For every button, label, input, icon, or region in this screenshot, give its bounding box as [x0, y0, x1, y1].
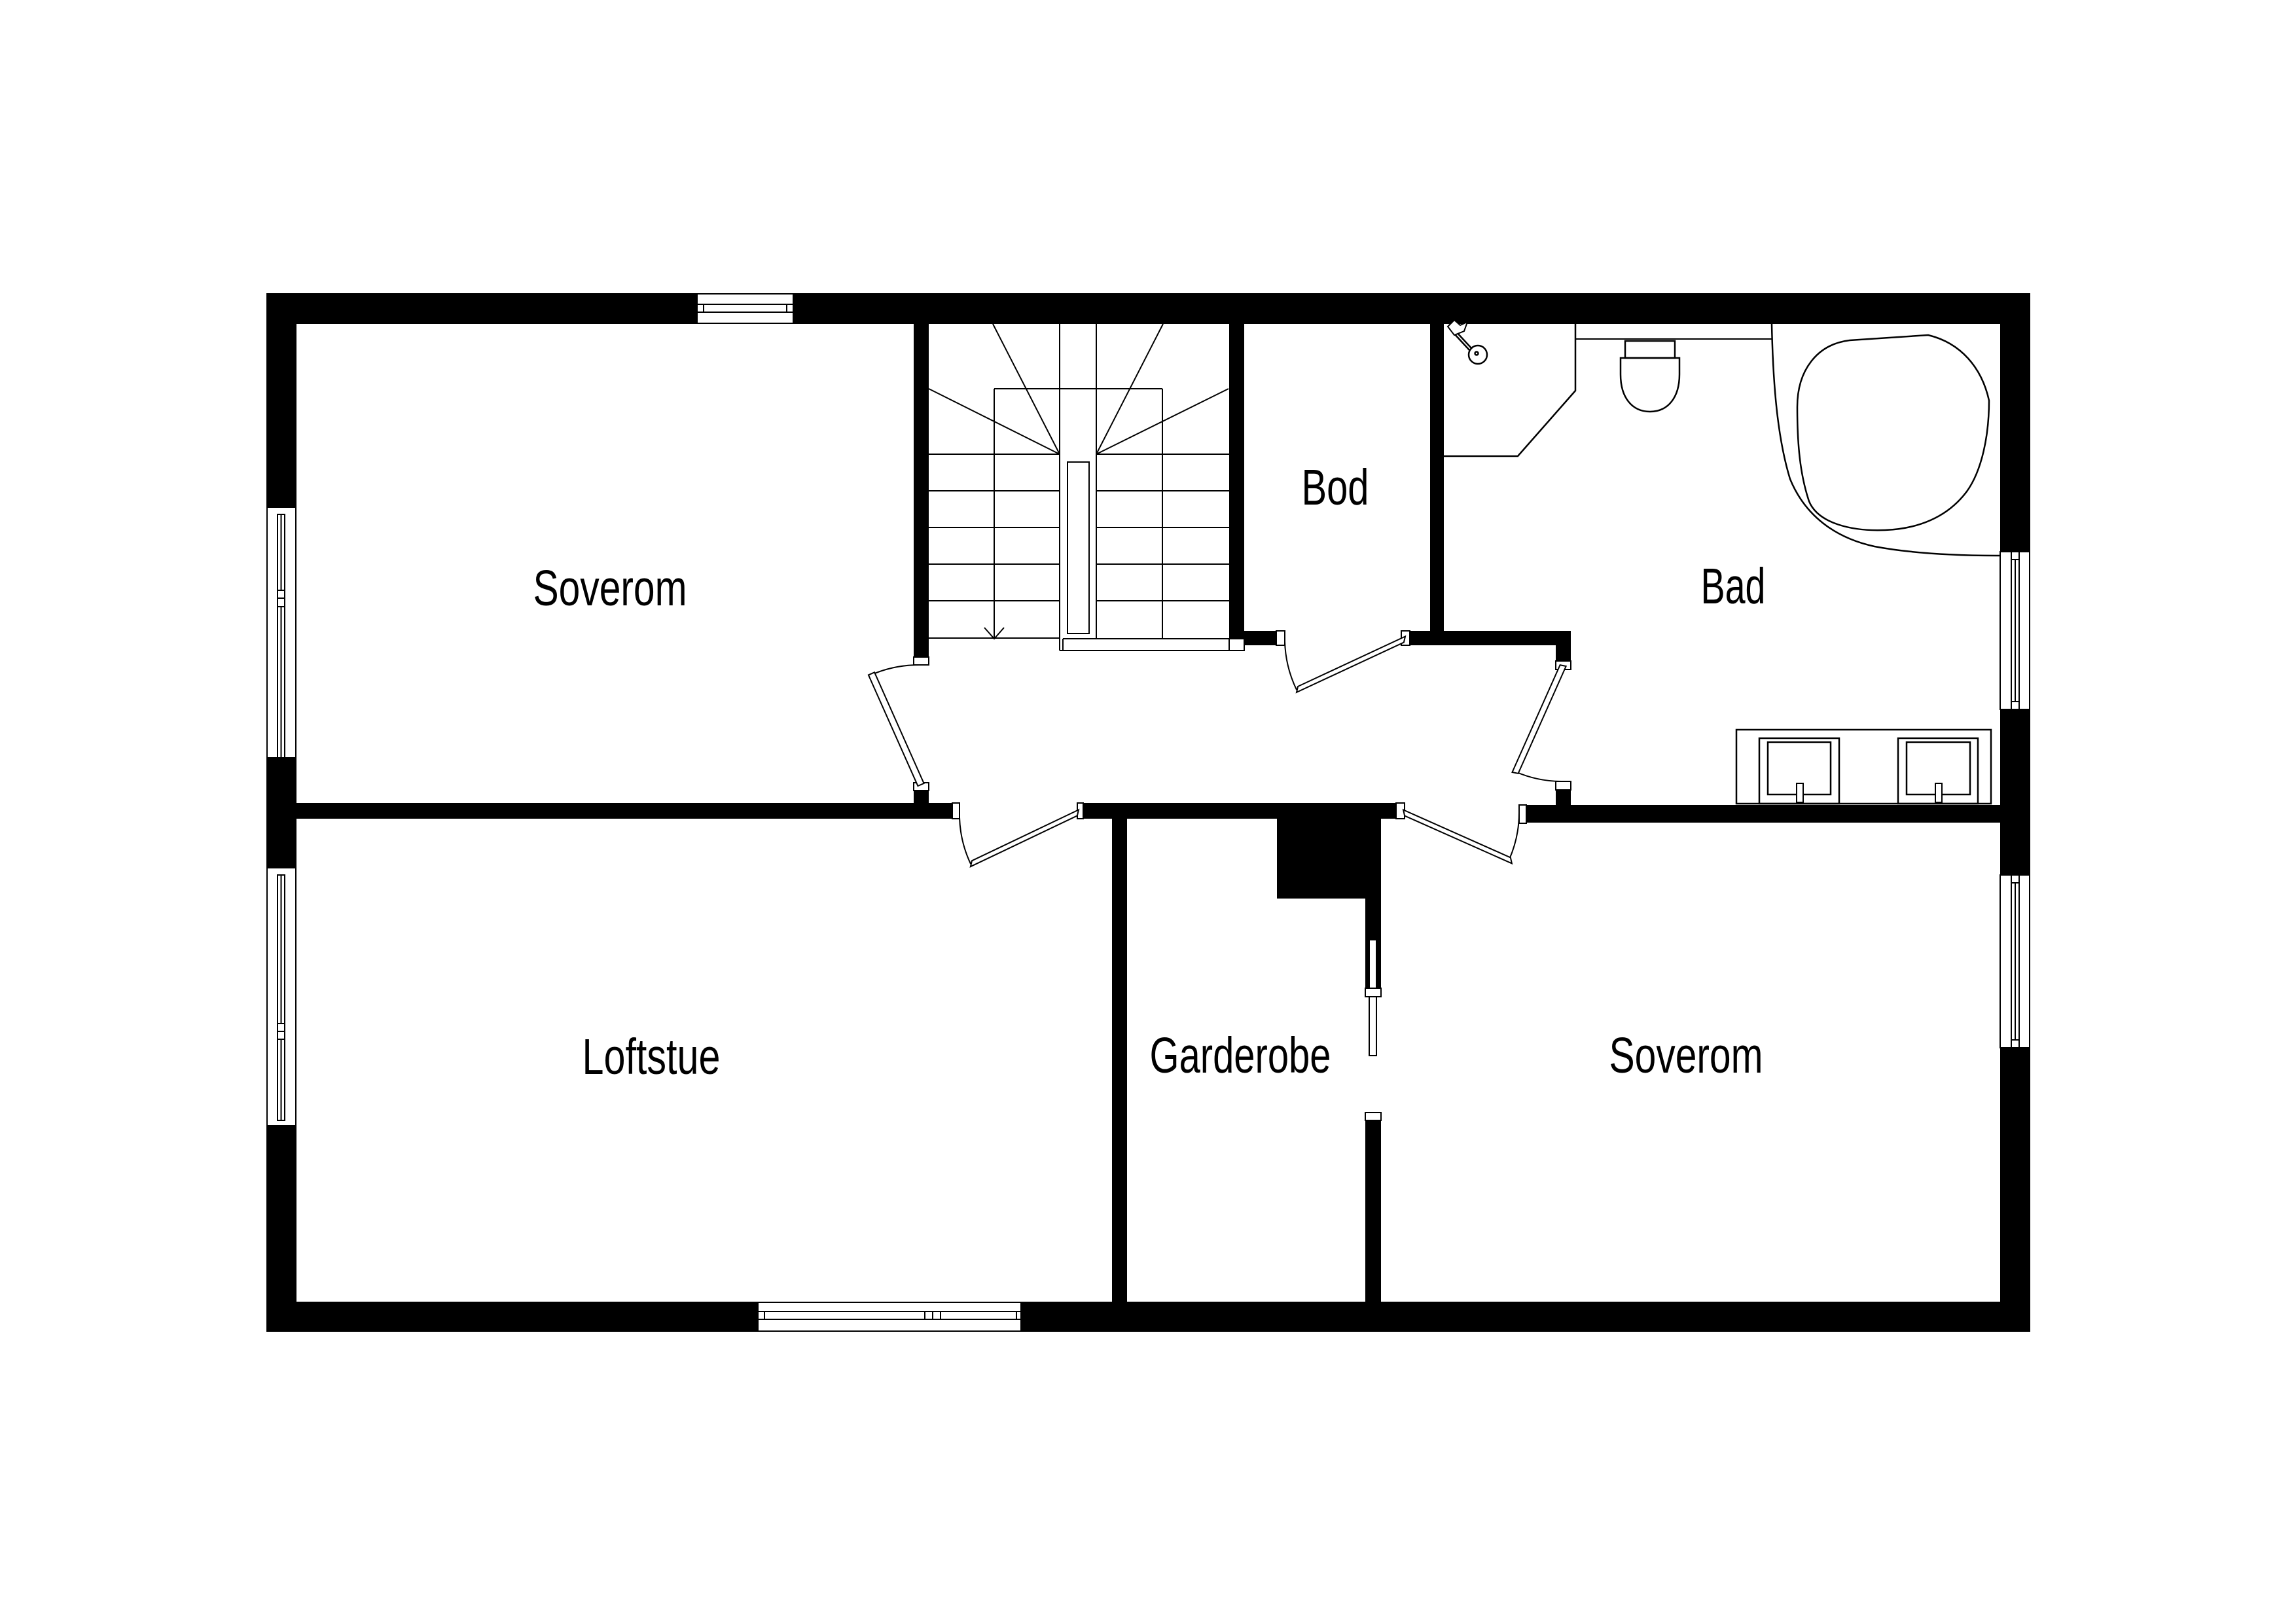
- svg-text:Soverom: Soverom: [1609, 1027, 1763, 1084]
- svg-text:Bod: Bod: [1302, 459, 1369, 516]
- svg-text:Loftstue: Loftstue: [583, 1029, 721, 1085]
- svg-text:Garderobe: Garderobe: [1150, 1027, 1331, 1084]
- svg-text:Soverom: Soverom: [533, 560, 687, 616]
- svg-text:Bad: Bad: [1701, 558, 1766, 615]
